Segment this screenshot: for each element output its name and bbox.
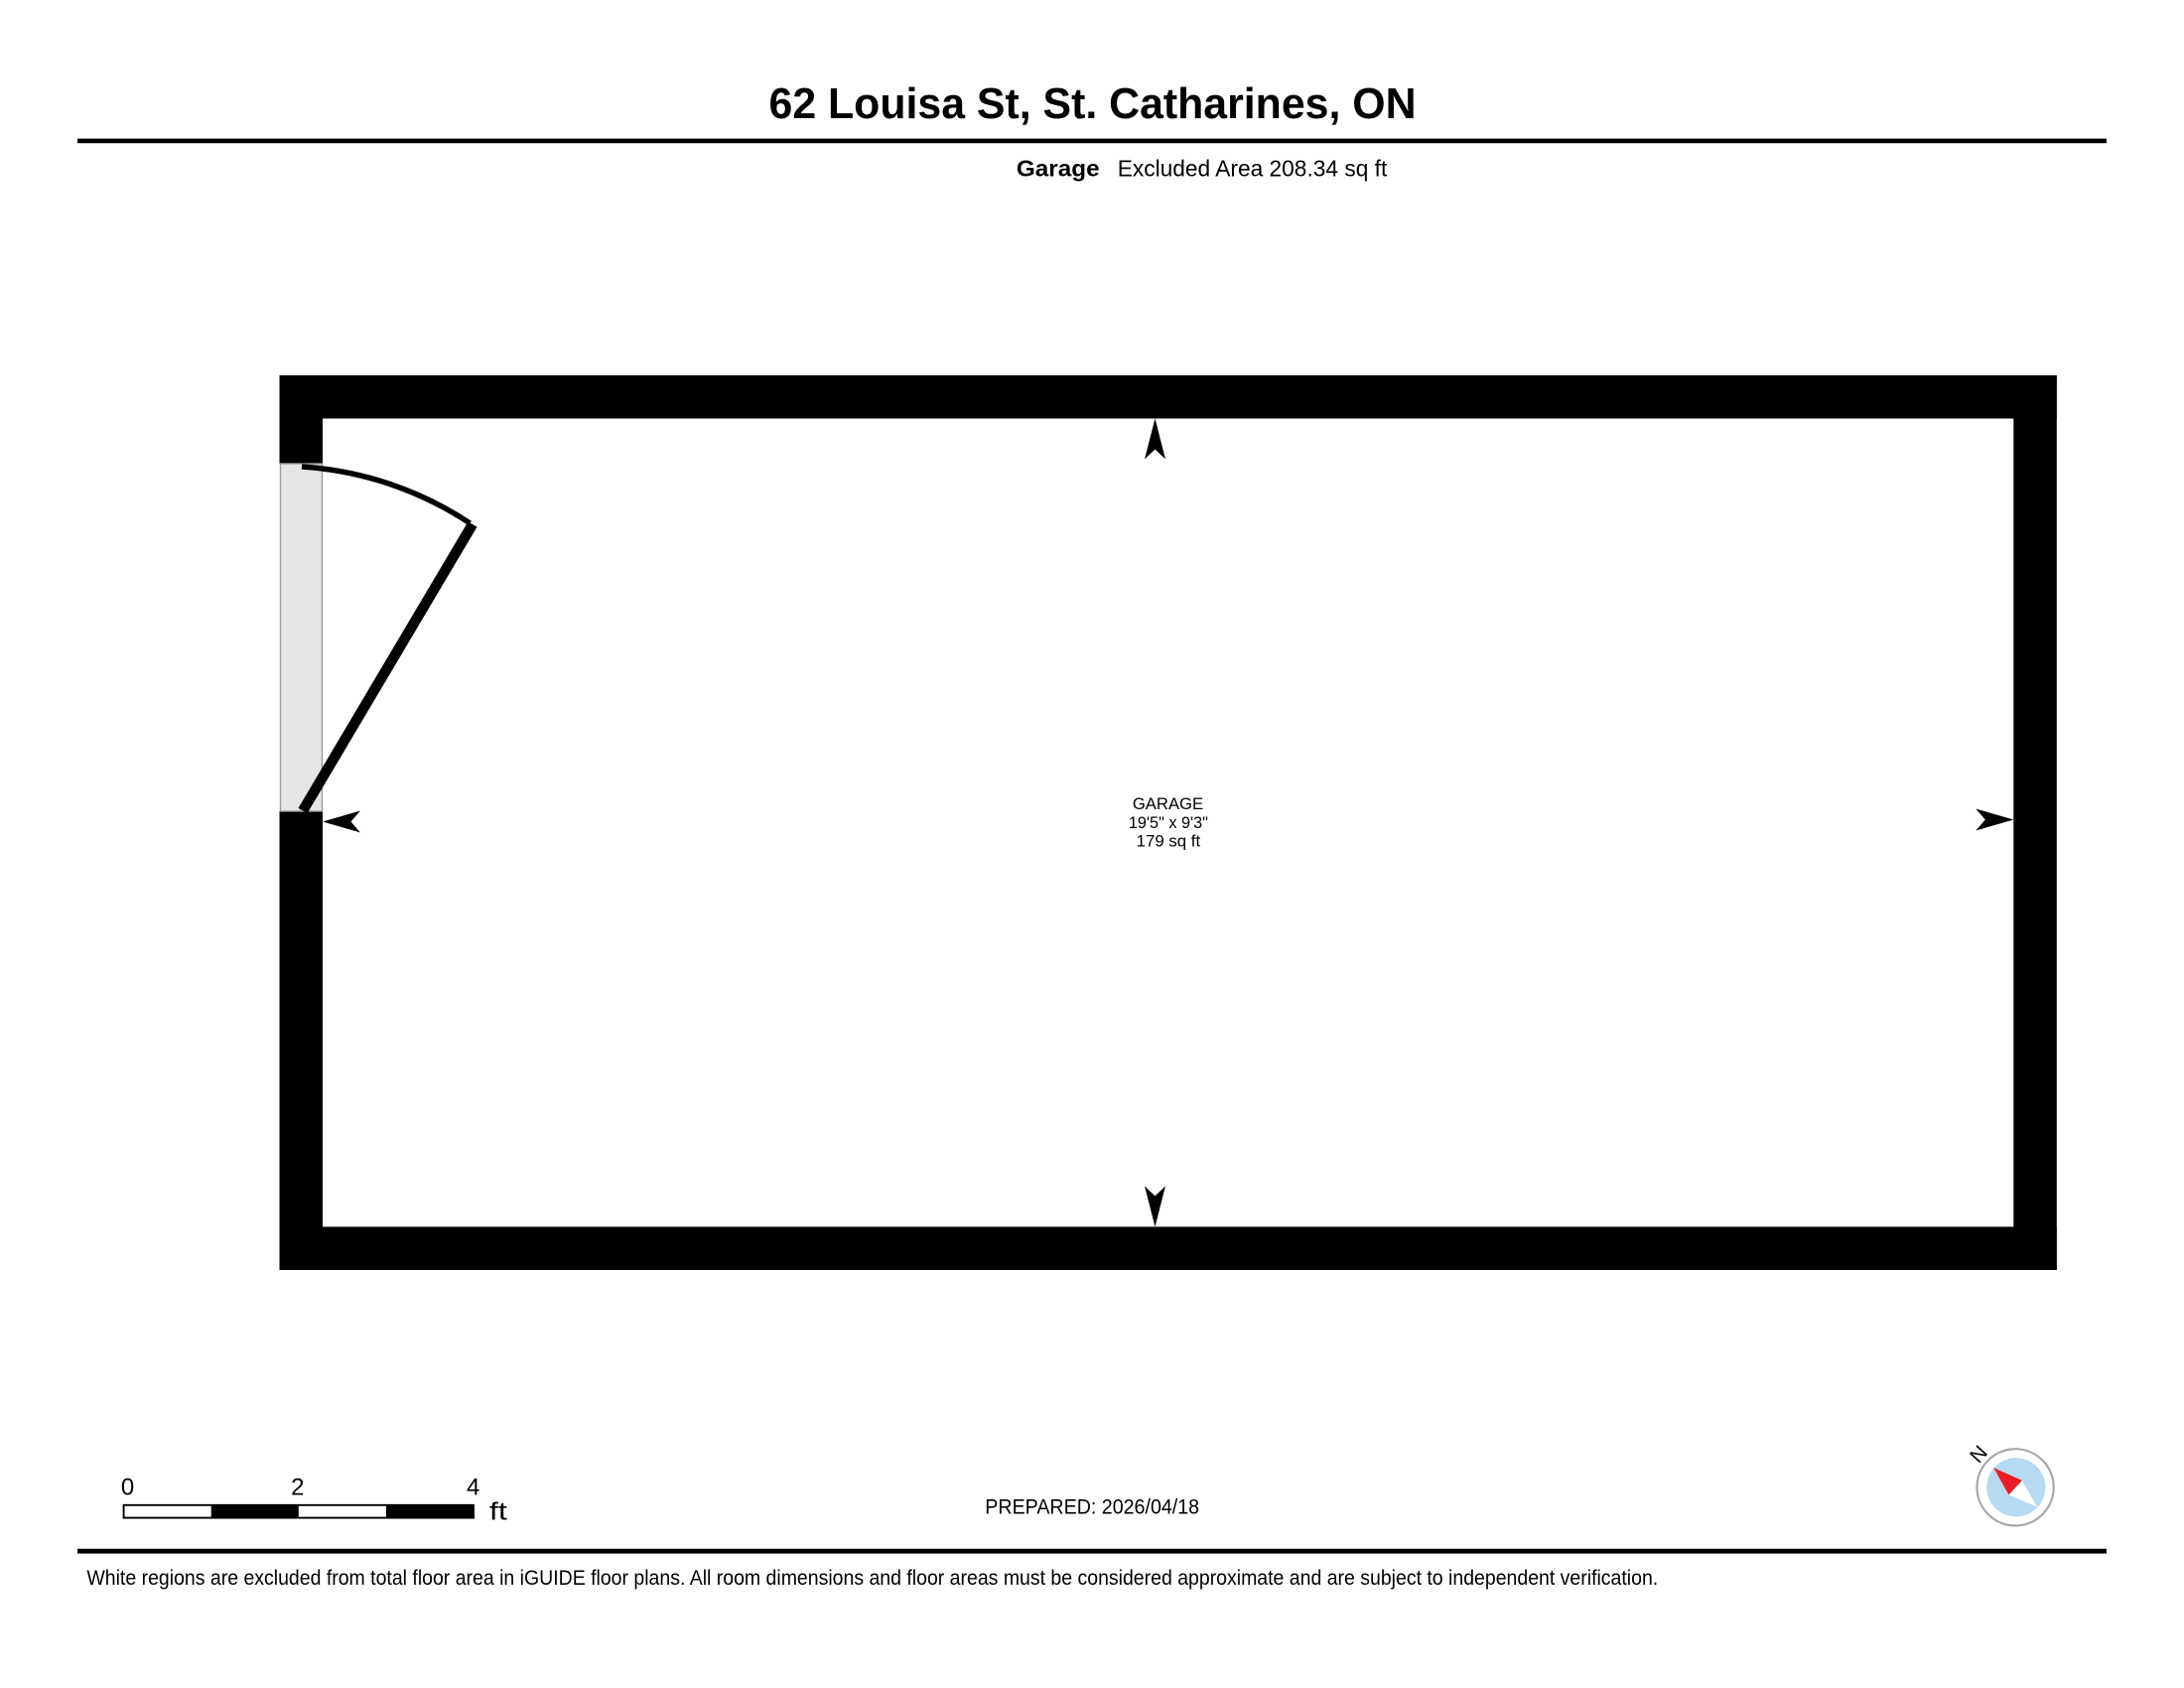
svg-text:0: 0 (121, 1474, 134, 1500)
svg-text:62 Louisa St, St. Catharines,: 62 Louisa St, St. Catharines, ON (769, 79, 1417, 128)
svg-text:2: 2 (291, 1474, 304, 1500)
svg-text:GARAGE: GARAGE (1133, 794, 1203, 813)
svg-text:Excluded Area 208.34 sq ft: Excluded Area 208.34 sq ft (1118, 155, 1388, 181)
svg-text:19'5" x 9'3": 19'5" x 9'3" (1129, 813, 1208, 832)
svg-text:ft: ft (489, 1498, 507, 1526)
svg-text:White regions are excluded fro: White regions are excluded from total fl… (86, 1566, 1658, 1590)
svg-text:4: 4 (467, 1474, 479, 1500)
svg-text:179 sq ft: 179 sq ft (1137, 831, 1201, 850)
svg-text:PREPARED: 2026/04/18: PREPARED: 2026/04/18 (985, 1495, 1199, 1519)
svg-text:Garage: Garage (1017, 155, 1100, 181)
